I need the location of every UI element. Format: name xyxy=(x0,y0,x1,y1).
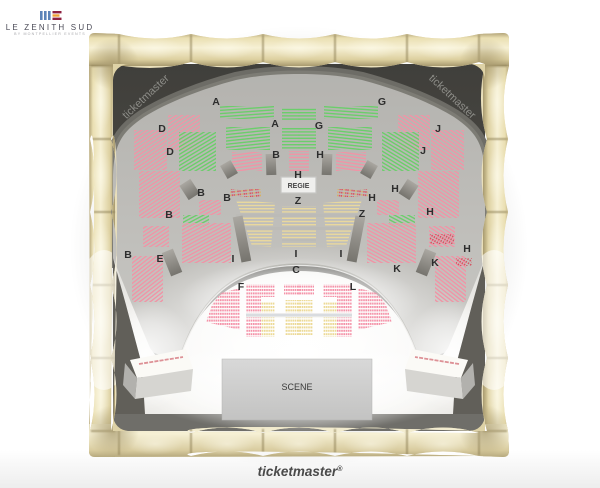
svg-text:J: J xyxy=(435,123,441,135)
svg-text:ticketmaster®: ticketmaster® xyxy=(258,464,344,479)
svg-text:LE ZENITH SUD: LE ZENITH SUD xyxy=(6,23,95,32)
svg-text:REGIE: REGIE xyxy=(288,183,310,190)
svg-text:B: B xyxy=(165,209,173,221)
svg-text:A: A xyxy=(212,96,220,108)
svg-text:J: J xyxy=(420,145,426,157)
svg-text:H: H xyxy=(294,169,302,181)
svg-text:D: D xyxy=(158,123,166,135)
svg-text:B: B xyxy=(197,187,205,199)
svg-text:H: H xyxy=(368,192,376,204)
svg-text:I: I xyxy=(232,253,235,265)
svg-text:I: I xyxy=(340,248,343,260)
svg-text:BY MONTPELLIER EVENTS: BY MONTPELLIER EVENTS xyxy=(14,32,86,36)
svg-text:D: D xyxy=(166,146,174,158)
svg-text:K: K xyxy=(431,257,439,269)
svg-text:H: H xyxy=(391,183,399,195)
svg-text:Z: Z xyxy=(359,208,366,220)
svg-text:G: G xyxy=(378,96,386,108)
svg-text:H: H xyxy=(426,206,434,218)
svg-text:K: K xyxy=(393,263,401,275)
svg-text:F: F xyxy=(238,281,245,293)
svg-text:G: G xyxy=(315,120,323,132)
svg-text:I: I xyxy=(295,248,298,260)
svg-text:B: B xyxy=(124,249,132,261)
svg-text:B: B xyxy=(272,149,280,161)
svg-text:Z: Z xyxy=(295,195,302,207)
svg-text:C: C xyxy=(292,264,300,276)
svg-text:H: H xyxy=(316,149,324,161)
svg-text:SCENE: SCENE xyxy=(281,382,312,392)
svg-text:B: B xyxy=(223,192,231,204)
svg-text:E: E xyxy=(156,253,163,265)
svg-text:H: H xyxy=(463,243,471,255)
svg-text:L: L xyxy=(350,281,357,293)
svg-text:A: A xyxy=(271,118,279,130)
